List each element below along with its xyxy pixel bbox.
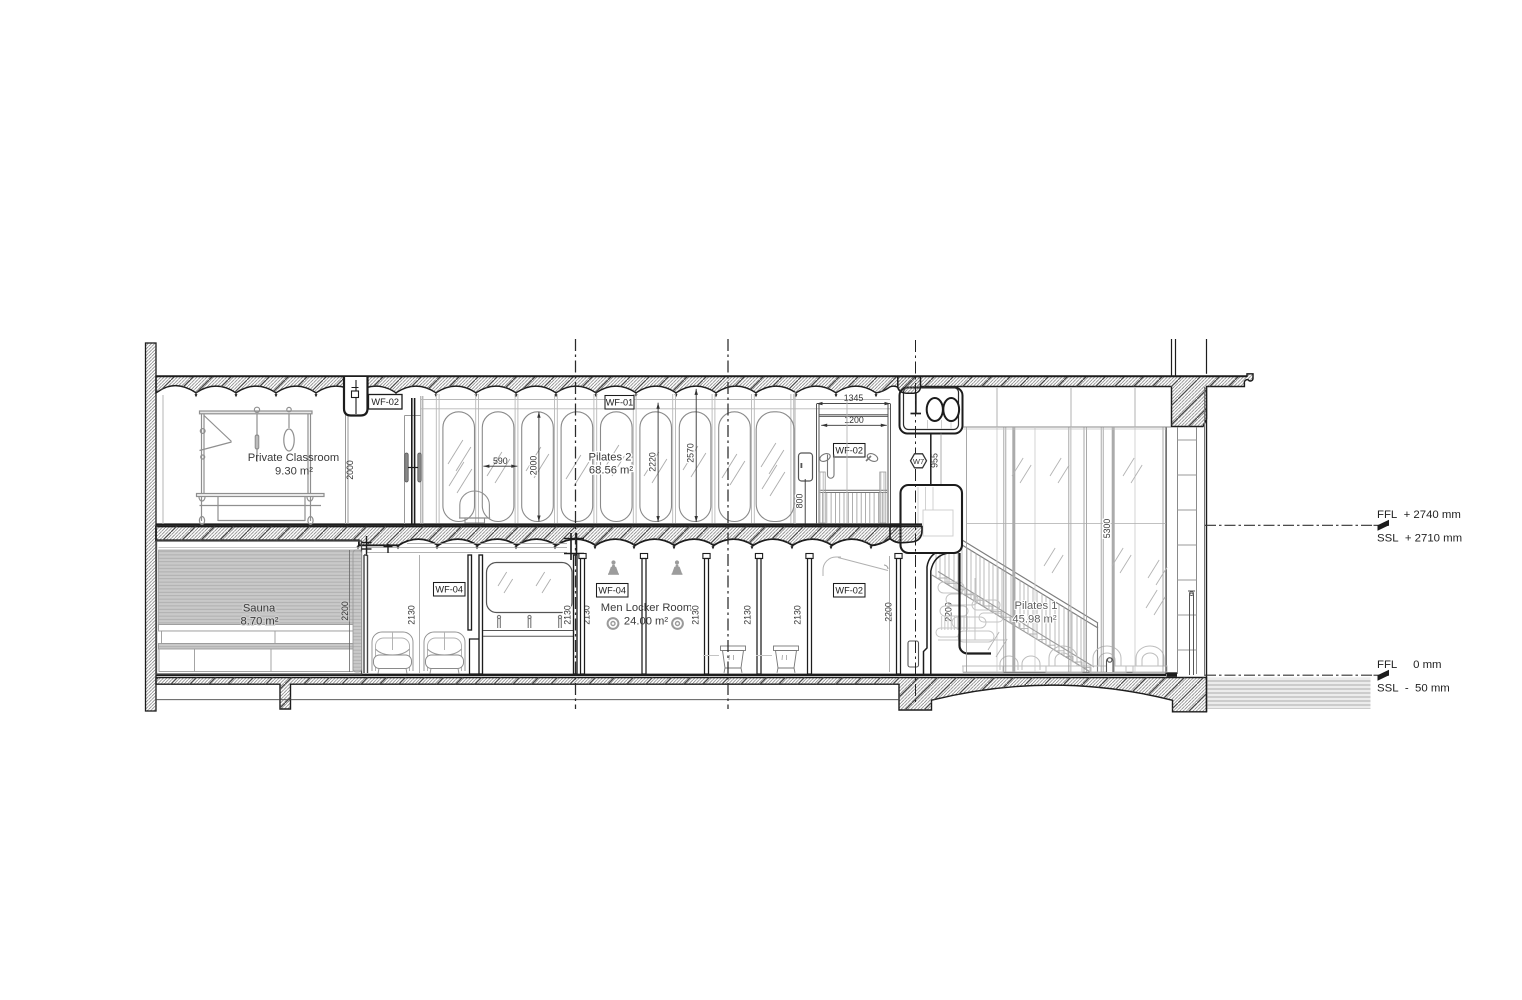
svg-text:WF-04: WF-04 [435, 585, 463, 595]
svg-text:2200: 2200 [884, 602, 894, 622]
svg-text:590: 590 [493, 456, 508, 466]
svg-text:W7: W7 [913, 457, 924, 466]
svg-text:5300: 5300 [1102, 519, 1112, 539]
svg-text:2570: 2570 [686, 443, 696, 463]
svg-text:WF-02: WF-02 [371, 397, 399, 407]
svg-text:2130: 2130 [793, 605, 803, 625]
svg-text:2130: 2130 [407, 605, 417, 625]
svg-text:Sauna: Sauna [243, 603, 276, 615]
svg-text:800: 800 [794, 494, 804, 509]
svg-text:FFL + 2740 mm: FFL + 2740 mm [1377, 509, 1461, 521]
svg-text:Pilates 1: Pilates 1 [1015, 600, 1058, 612]
svg-text:9.30 m²: 9.30 m² [275, 466, 313, 478]
svg-text:WF-02: WF-02 [835, 586, 863, 596]
svg-text:2220: 2220 [648, 452, 658, 472]
svg-text:2130: 2130 [563, 605, 573, 625]
svg-text:24.00 m²: 24.00 m² [624, 616, 668, 628]
svg-text:955: 955 [930, 453, 940, 468]
svg-text:WF-02: WF-02 [835, 446, 863, 456]
svg-text:2130: 2130 [743, 605, 753, 625]
svg-text:SSL + 2710 mm: SSL + 2710 mm [1377, 533, 1462, 545]
svg-text:2000: 2000 [529, 456, 539, 476]
svg-text:SSL - 50 mm: SSL - 50 mm [1377, 683, 1450, 695]
svg-text:2000: 2000 [345, 460, 355, 480]
svg-text:FFL 0 mm: FFL 0 mm [1377, 659, 1442, 671]
svg-text:45.98 m²: 45.98 m² [1012, 614, 1056, 626]
svg-text:Private Classroom: Private Classroom [248, 452, 339, 464]
svg-text:68.56 m²: 68.56 m² [589, 465, 633, 477]
svg-text:WF-01: WF-01 [606, 398, 634, 408]
svg-text:Pilates 2: Pilates 2 [589, 452, 632, 464]
svg-text:WF-04: WF-04 [598, 586, 626, 596]
svg-text:2130: 2130 [691, 605, 701, 625]
svg-text:2200: 2200 [340, 601, 350, 621]
svg-text:8.70 m²: 8.70 m² [241, 616, 279, 628]
svg-text:Men Locker Room: Men Locker Room [601, 602, 692, 614]
